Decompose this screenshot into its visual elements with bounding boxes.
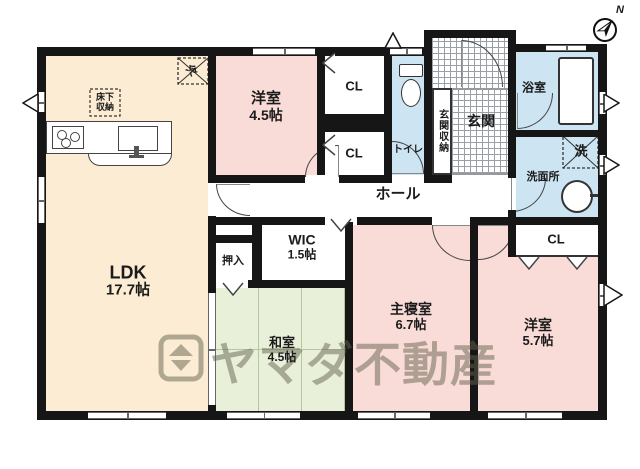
- room-label-bathroom: 浴室: [522, 81, 546, 94]
- room-name: 和室: [269, 336, 295, 351]
- window: [227, 412, 300, 419]
- wall: [37, 47, 432, 56]
- room-label-closet-c: CL: [547, 233, 564, 248]
- kitchen-faucet-base: [129, 155, 144, 158]
- wall: [508, 130, 607, 137]
- compass-north-label: N: [616, 4, 624, 16]
- porch-step-line: [452, 88, 508, 90]
- wall: [248, 280, 353, 288]
- room-label-wic: WIC 1.5帖: [288, 232, 317, 261]
- wall: [357, 217, 432, 225]
- room-size: 4.5帖: [249, 108, 282, 124]
- washing-machine-label: 洗: [574, 145, 587, 160]
- room-label-yoshitsu-57: 洋室 5.7帖: [522, 318, 553, 348]
- vent-triangle-icon: [22, 94, 39, 118]
- underfloor-storage-line2: 収納: [96, 102, 114, 112]
- wall: [208, 216, 216, 293]
- stove: [52, 126, 84, 149]
- room-label-ldk: LDK 17.7帖: [106, 263, 150, 300]
- wall: [208, 405, 216, 411]
- room-label-closet-a: CL: [345, 80, 362, 95]
- room-label-oshiire: 押入: [222, 255, 244, 267]
- room-name: 主寝室: [390, 302, 432, 318]
- window: [358, 412, 430, 419]
- room-label-senmenjo: 洗面所: [527, 171, 560, 183]
- window: [38, 92, 45, 112]
- room-size: 1.5帖: [288, 248, 317, 261]
- closet-door-chevron-icon: [566, 256, 588, 276]
- room-name: 洋室: [524, 318, 552, 334]
- stove-burner: [61, 138, 71, 148]
- wall: [424, 175, 452, 183]
- wall: [216, 217, 325, 225]
- wall: [508, 30, 516, 178]
- vent-triangle-icon: [603, 94, 620, 118]
- wall: [424, 30, 432, 175]
- room-genkan: [452, 90, 508, 175]
- wall: [325, 114, 384, 132]
- vent-triangle-icon: [384, 32, 402, 54]
- wall: [345, 222, 353, 411]
- wall: [216, 175, 305, 183]
- wall: [208, 235, 262, 243]
- closet-door-chevron-icon: [222, 282, 244, 302]
- room-label-yoshitsu-45: 洋室 4.5帖: [249, 91, 282, 123]
- window: [253, 48, 315, 55]
- closet-door-chevron-icon: [322, 134, 337, 161]
- window: [88, 412, 166, 419]
- room-ldk: [46, 56, 208, 411]
- toilet-tank: [399, 64, 423, 77]
- window: [38, 177, 45, 223]
- window: [488, 412, 562, 419]
- wall: [339, 175, 392, 183]
- room-name: 洋室: [251, 91, 281, 108]
- room-label-genkan-shunou: 玄関収納: [436, 109, 447, 153]
- wall: [424, 30, 516, 38]
- closet-door-chevron-icon: [330, 218, 352, 238]
- vent-triangle-icon: [603, 156, 620, 180]
- toilet-bowl: [401, 79, 421, 107]
- vent-triangle-icon: [603, 284, 623, 312]
- room-label-genkan: 玄関: [467, 114, 495, 130]
- wall: [208, 56, 216, 183]
- room-name: LDK: [109, 263, 146, 283]
- window: [546, 45, 586, 51]
- wall: [470, 217, 607, 225]
- room-name: WIC: [288, 232, 315, 248]
- bathtub: [558, 57, 594, 125]
- stove-burner: [70, 132, 80, 142]
- underfloor-storage-label: 床下 収納: [96, 92, 114, 112]
- room-label-shushinshitsu: 主寝室 6.7帖: [390, 302, 432, 332]
- room-label-closet-b: CL: [345, 147, 362, 162]
- floor-plan: 冷 床下 収納 洗: [0, 0, 640, 469]
- room-size: 6.7帖: [395, 318, 426, 333]
- door-arc-ldk: [216, 184, 250, 216]
- wall: [384, 56, 392, 175]
- room-size: 4.5帖: [268, 351, 297, 364]
- room-size: 17.7帖: [106, 283, 150, 300]
- wall: [470, 225, 478, 411]
- sliding-door: [208, 293, 216, 405]
- room-label-washitsu: 和室 4.5帖: [268, 336, 297, 364]
- room-size: 5.7帖: [522, 334, 553, 349]
- wall: [508, 225, 516, 257]
- room-label-hall: ホール: [375, 187, 420, 204]
- closet-door-chevron-icon: [322, 52, 337, 79]
- room-label-toilet: トイレ: [393, 144, 423, 155]
- underfloor-storage-line1: 床下: [96, 92, 114, 102]
- wash-basin: [561, 180, 593, 213]
- closet-door-chevron-icon: [518, 256, 540, 276]
